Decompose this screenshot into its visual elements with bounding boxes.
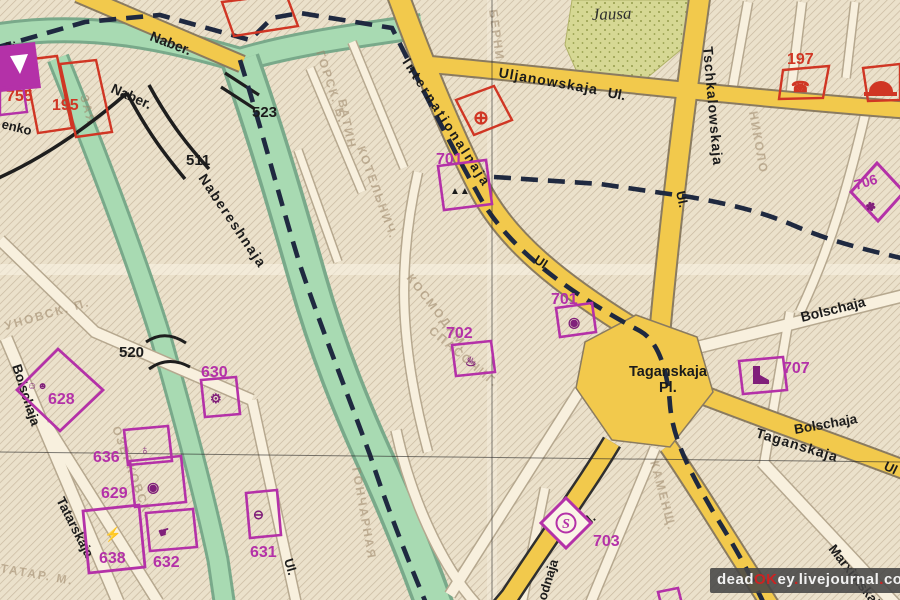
magenta-number-702: 702 <box>446 325 473 342</box>
bridge-number-511: 511 <box>186 152 210 169</box>
bomb-icon: ♁ <box>140 442 150 457</box>
watermark-text: OK <box>754 571 778 588</box>
city-map: ГОРСК. Б. ВАТИН КОТЕЛЬНИЧ. КОСМОДАМ. СПА… <box>0 0 900 600</box>
watermark-text: ey <box>778 571 795 588</box>
square-label-taganskaja-pl: Pl. <box>659 380 677 396</box>
magenta-number-701-north: 701 <box>436 151 463 168</box>
ringed-dot-icon: ◉ <box>147 479 159 495</box>
water-label-jausa: Jausa <box>591 4 631 24</box>
theater-masks-icon: ☺☻ <box>27 381 48 392</box>
magenta-number-638: 638 <box>99 550 126 567</box>
fire-helmet-icon <box>864 92 897 96</box>
watermark-text: com <box>884 571 900 588</box>
watermark-text: livejournal <box>799 571 880 588</box>
magenta-number-636: 636 <box>93 449 120 466</box>
gear-flower-icon: ⚙ <box>210 391 222 406</box>
magenta-number-631: 631 <box>250 544 277 561</box>
bridge-number-520: 520 <box>119 344 144 361</box>
hot-springs-icon: ♨ <box>465 354 477 369</box>
magenta-number-630: 630 <box>201 364 228 381</box>
bridge-number-523: 523 <box>252 104 277 121</box>
magenta-number-628: 628 <box>48 391 75 408</box>
street-label-uljanowskaja-ul: Ul. <box>606 84 627 103</box>
red-number-197: 197 <box>787 51 814 68</box>
red-number-195: 195 <box>52 97 79 114</box>
magenta-number-701-south: 701 <box>551 291 578 308</box>
medical-cross-icon: ⊕ <box>473 108 489 129</box>
watermark: deadOKey.livejournal.com <box>710 568 900 593</box>
ringed-dot-icon: ◉ <box>568 314 580 330</box>
station-letter-s: S <box>562 517 570 532</box>
watermark-text: dead <box>717 571 754 588</box>
magenta-number-632: 632 <box>153 554 180 571</box>
magenta-number-629: 629 <box>101 485 128 502</box>
lightning-icon: ⚡ <box>104 526 121 543</box>
telephone-icon: ☎ <box>791 79 810 96</box>
circle-bar-icon: ⊖ <box>253 507 264 522</box>
magenta-number-703: 703 <box>593 533 620 550</box>
mountains-icon: ▲▲ <box>450 186 470 197</box>
square-label-taganskaja: Taganskaja <box>629 364 708 380</box>
magenta-number-707: 707 <box>783 360 810 377</box>
map-page: ГОРСК. Б. ВАТИН КОТЕЛЬНИЧ. КОСМОДАМ. СПА… <box>0 0 900 600</box>
